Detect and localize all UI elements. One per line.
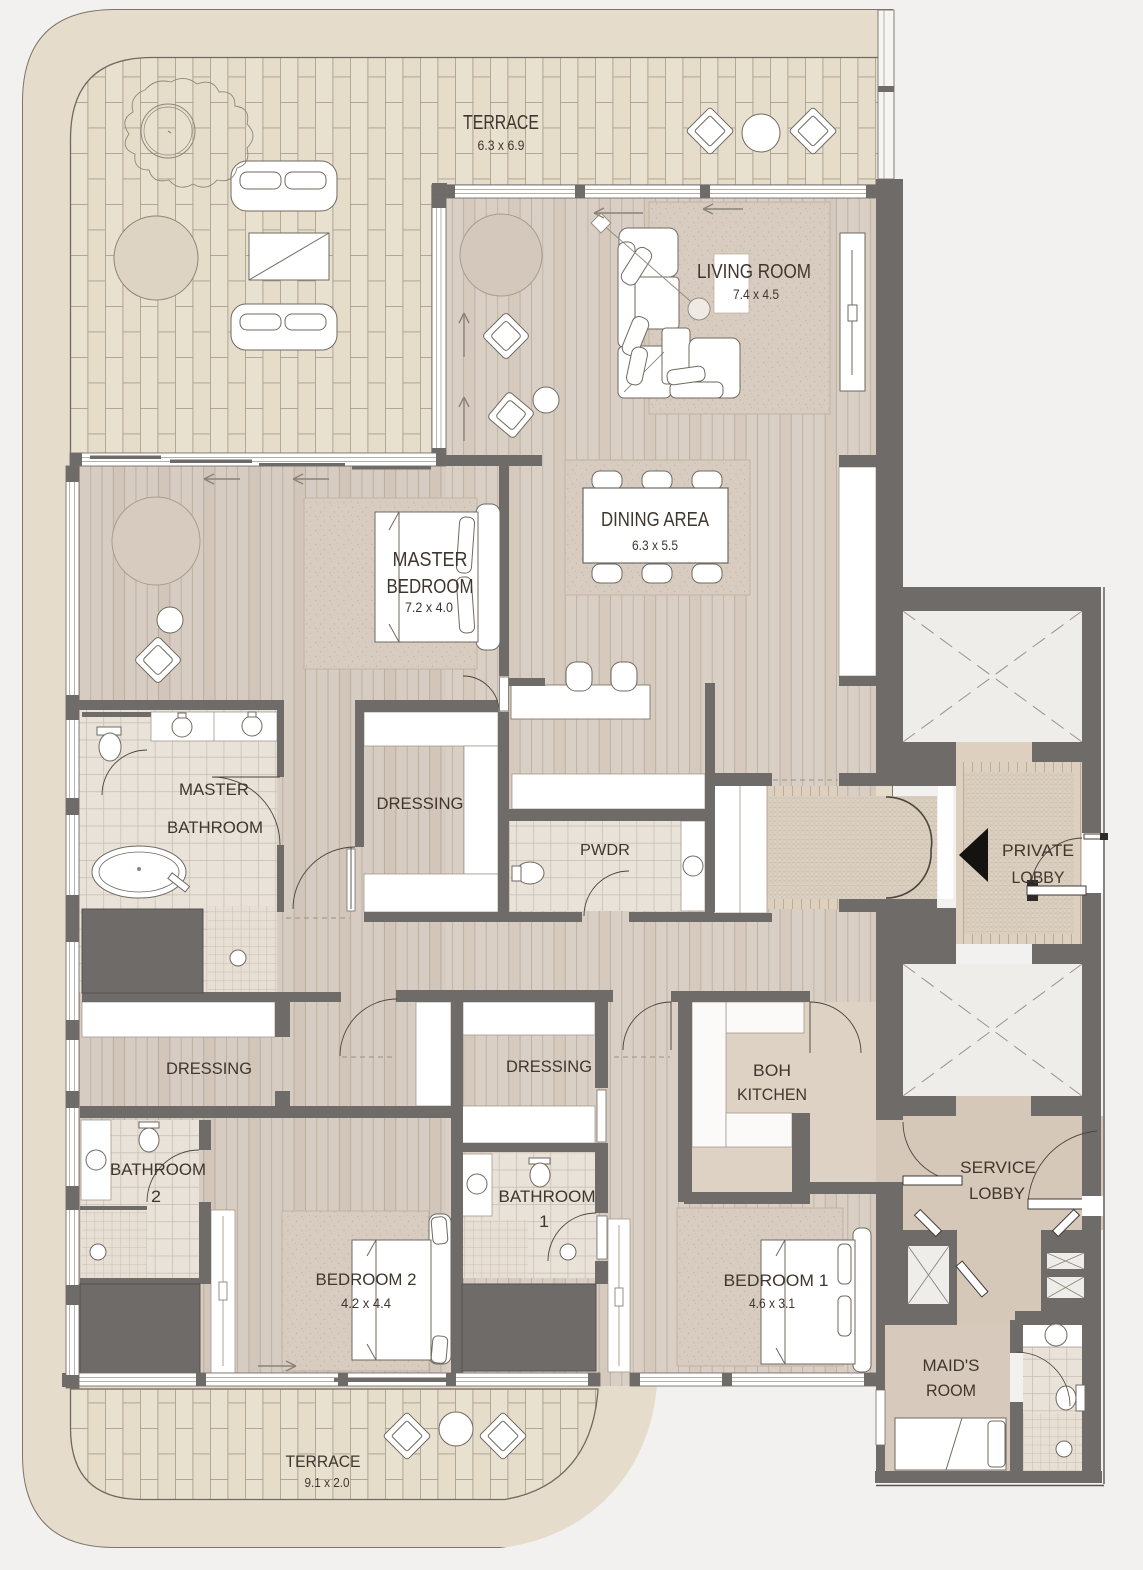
svg-text:4.6 x 3.1: 4.6 x 3.1 [749, 1296, 795, 1311]
svg-text:DINING AREA: DINING AREA [601, 509, 710, 531]
svg-text:DRESSING: DRESSING [506, 1057, 592, 1076]
svg-text:2: 2 [151, 1187, 161, 1206]
svg-text:BEDROOM: BEDROOM [387, 576, 474, 598]
svg-text:BEDROOM 1: BEDROOM 1 [724, 1271, 829, 1290]
svg-text:9.1 x 2.0: 9.1 x 2.0 [305, 1476, 350, 1490]
svg-text:LOBBY: LOBBY [969, 1184, 1025, 1203]
svg-text:1: 1 [539, 1212, 549, 1231]
svg-text:BATHROOM: BATHROOM [167, 818, 263, 837]
svg-text:ROOM: ROOM [926, 1381, 976, 1400]
svg-text:PRIVATE: PRIVATE [1002, 841, 1074, 860]
svg-text:7.2 x 4.0: 7.2 x 4.0 [405, 600, 453, 615]
svg-text:DRESSING: DRESSING [166, 1059, 252, 1078]
svg-text:6.3 x 6.9: 6.3 x 6.9 [478, 138, 525, 153]
svg-text:KITCHEN: KITCHEN [737, 1085, 807, 1104]
svg-text:7.4 x 4.5: 7.4 x 4.5 [733, 287, 779, 302]
svg-text:BATHROOM: BATHROOM [499, 1187, 596, 1206]
svg-text:DRESSING: DRESSING [377, 794, 464, 813]
svg-text:LOBBY: LOBBY [1012, 868, 1065, 887]
svg-text:MASTER: MASTER [393, 549, 468, 571]
svg-text:4.2 x 4.4: 4.2 x 4.4 [341, 1296, 391, 1311]
svg-text:PWDR: PWDR [580, 842, 630, 859]
svg-text:6.3 x 5.5: 6.3 x 5.5 [632, 538, 678, 553]
svg-text:MASTER: MASTER [179, 780, 249, 799]
svg-text:BEDROOM 2: BEDROOM 2 [316, 1270, 417, 1289]
svg-text:TERRACE: TERRACE [463, 112, 539, 134]
svg-text:LIVING ROOM: LIVING ROOM [697, 261, 811, 283]
svg-text:BOH: BOH [753, 1061, 791, 1080]
svg-text:MAID'S: MAID'S [923, 1356, 980, 1375]
svg-text:TERRACE: TERRACE [286, 1452, 361, 1471]
svg-text:BATHROOM: BATHROOM [110, 1160, 206, 1179]
svg-text:SERVICE: SERVICE [960, 1158, 1036, 1177]
